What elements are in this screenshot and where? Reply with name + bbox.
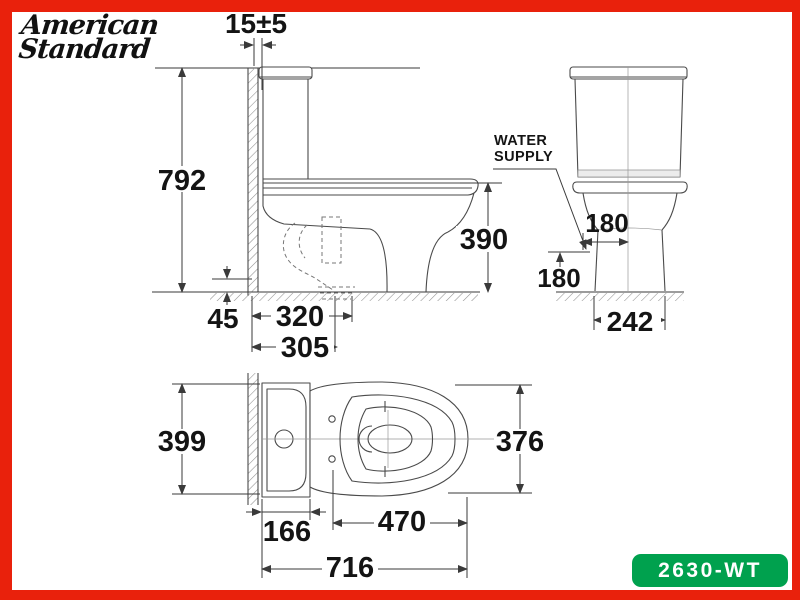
dim-tank-width-value: 399 [158, 426, 206, 458]
water-supply-label-1: WATER [494, 133, 547, 149]
bolt-hole-bottom [329, 456, 335, 462]
dim-total-height: 792 [156, 68, 208, 292]
toilet-front-profile [570, 67, 687, 291]
top-view: 399 376 166 470 [156, 373, 546, 584]
pedestal-front [426, 232, 448, 292]
tank [263, 79, 308, 179]
water-supply-label-2: SUPPLY [494, 149, 553, 165]
toilet-side-profile [259, 67, 478, 299]
dim-supply-height-value: 180 [537, 263, 580, 293]
pedestal-left [595, 230, 598, 291]
brand-logo: American Standard [18, 14, 160, 62]
dim-supply-offset: 180 [583, 208, 629, 250]
dim-rim-height: 390 [456, 183, 514, 292]
dim-rough-in-group: 320 305 [252, 296, 352, 364]
technical-drawing: 15±5 792 390 45 320 [0, 0, 800, 600]
drawing-sheet: 15±5 792 390 45 320 [0, 0, 800, 600]
wall-hatch-top [248, 373, 258, 505]
product-code-text: 2630-WT [658, 559, 762, 583]
bowl-right-taper [662, 193, 677, 230]
pedestal-right [662, 230, 665, 291]
floor-hatch [210, 293, 478, 301]
product-code-badge: 2630-WT [632, 554, 788, 587]
dim-tank-width: 399 [156, 384, 260, 494]
dim-supply-offset-value: 180 [585, 208, 628, 238]
dim-total-length-value: 716 [326, 552, 374, 584]
wall-hatch [248, 68, 258, 292]
dim-wall-gap-value: 15±5 [225, 8, 287, 39]
pedestal-rear [370, 229, 387, 292]
bolt-hole-top [329, 416, 335, 422]
dim-seat-length-value: 470 [378, 506, 426, 538]
dim-rim-height-value: 390 [460, 224, 508, 256]
side-view: 15±5 792 390 45 320 [152, 8, 514, 364]
tank-front [575, 79, 683, 177]
bowl-underside [263, 195, 370, 229]
front-view: WATER SUPPLY 180 180 242 [493, 67, 687, 337]
dim-supply-height: 180 [537, 252, 590, 293]
dim-total-height-value: 792 [158, 165, 206, 197]
dim-tank-depth-value: 166 [263, 516, 311, 548]
seat-edge-front [573, 182, 687, 193]
trapway-hidden-lines [283, 217, 355, 299]
dim-outlet-offset-value: 45 [207, 303, 238, 334]
brand-logo-line2: Standard [18, 38, 157, 62]
dim-base-width: 242 [594, 296, 665, 337]
dim-rough-in-value: 305 [281, 332, 329, 364]
seat-cover [263, 179, 478, 195]
dim-bowl-width-value: 376 [496, 426, 544, 458]
dim-base-width-value: 242 [607, 306, 654, 337]
dim-rough-in-outer-value: 320 [276, 301, 324, 333]
dim-tank-depth: 166 [246, 499, 326, 578]
